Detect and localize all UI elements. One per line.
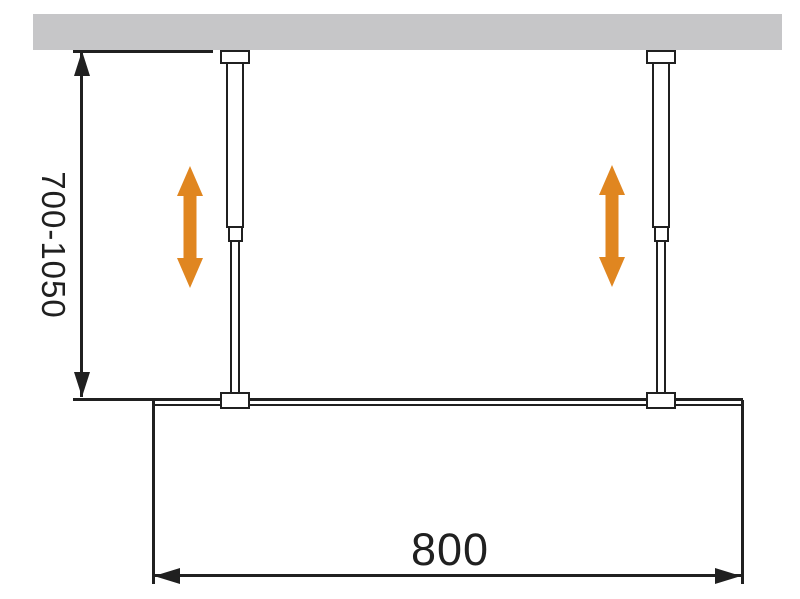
right-support-tube — [652, 61, 670, 228]
width-dimension-label: 800 — [330, 528, 570, 572]
ceiling-slab — [33, 14, 782, 50]
glass-panel-top-edge — [73, 398, 743, 401]
height-range-dimension-label: 700-1050 — [31, 125, 75, 365]
dimension-arrow-right-icon — [715, 568, 741, 584]
vertical-dimension-line — [80, 52, 83, 397]
right-support-rod — [656, 240, 666, 395]
dimension-arrow-left-icon — [154, 568, 180, 584]
installation-diagram: 700-1050 800 — [0, 0, 800, 599]
right-ceiling-bracket — [646, 50, 676, 64]
right-glass-clamp — [646, 392, 676, 409]
vertical-double-arrow-icon — [176, 166, 204, 288]
right-extension-line — [741, 400, 744, 584]
left-adjustment-collar — [228, 226, 243, 242]
left-extension-line — [152, 400, 155, 584]
left-glass-clamp — [220, 392, 250, 409]
ceiling-extension-line — [73, 50, 213, 53]
right-adjustment-collar — [654, 226, 669, 242]
vertical-double-arrow-icon — [598, 165, 626, 287]
dimension-arrow-down-icon — [74, 372, 90, 397]
left-ceiling-bracket — [220, 50, 250, 64]
left-support-tube — [226, 61, 244, 228]
left-support-rod — [230, 240, 240, 395]
dimension-arrow-up-icon — [74, 51, 90, 76]
